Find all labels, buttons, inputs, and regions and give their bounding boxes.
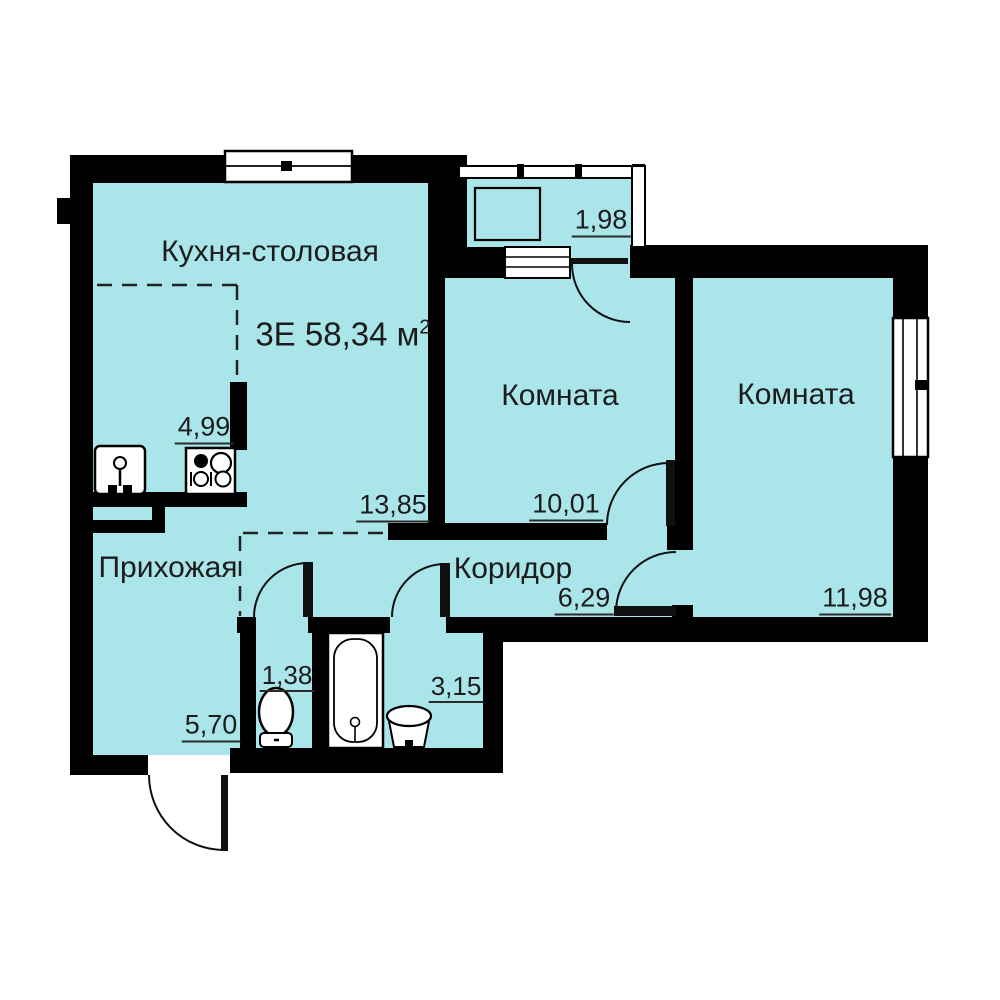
doorway-room-right	[675, 550, 693, 612]
label-corridor-area: 6,29	[555, 585, 614, 616]
label-balcony-area: 1,98	[572, 207, 631, 238]
floor-plan: Кухня-столовая 3Е 58,34 м2 4,99 13,85 1,…	[0, 0, 1000, 1000]
doorway-room-top	[607, 523, 667, 540]
floor-room-right	[693, 278, 893, 617]
doorway-wc	[253, 617, 308, 633]
label-kitchen-name: Кухня-столовая	[161, 237, 379, 267]
label-room-top-area: 10,01	[529, 491, 603, 522]
kitchen-sink	[95, 446, 145, 494]
balcony-cabinet	[475, 188, 540, 240]
entrance-door	[149, 775, 228, 851]
label-room-top-name: Комната	[501, 381, 618, 411]
doorway-bathroom	[390, 617, 446, 633]
label-wc-area: 1,38	[260, 662, 315, 692]
floor-plan-drawing	[0, 0, 1000, 1000]
bathtub	[328, 633, 383, 748]
stove	[186, 448, 235, 494]
plan-title-sup: 2	[419, 316, 430, 339]
room-right-window	[893, 318, 928, 457]
label-bathroom-area: 3,15	[429, 673, 484, 703]
label-kitchen-area: 13,85	[356, 492, 430, 523]
kitchen-window	[225, 151, 352, 182]
label-hallway-name: Прихожая	[98, 553, 237, 583]
label-room-right-name: Комната	[737, 380, 854, 410]
balcony-sill-window	[505, 247, 570, 278]
label-corridor-name: Коридор	[454, 554, 572, 584]
label-kitchen-zone-area: 4,99	[175, 414, 234, 445]
plan-title-main: 3Е 58,34 м	[255, 316, 419, 353]
label-room-right-area: 11,98	[819, 585, 891, 616]
toilet	[259, 688, 293, 747]
washbasin	[387, 706, 431, 748]
label-hallway-area: 5,70	[182, 712, 241, 743]
label-plan-title: 3Е 58,34 м2	[255, 318, 430, 351]
